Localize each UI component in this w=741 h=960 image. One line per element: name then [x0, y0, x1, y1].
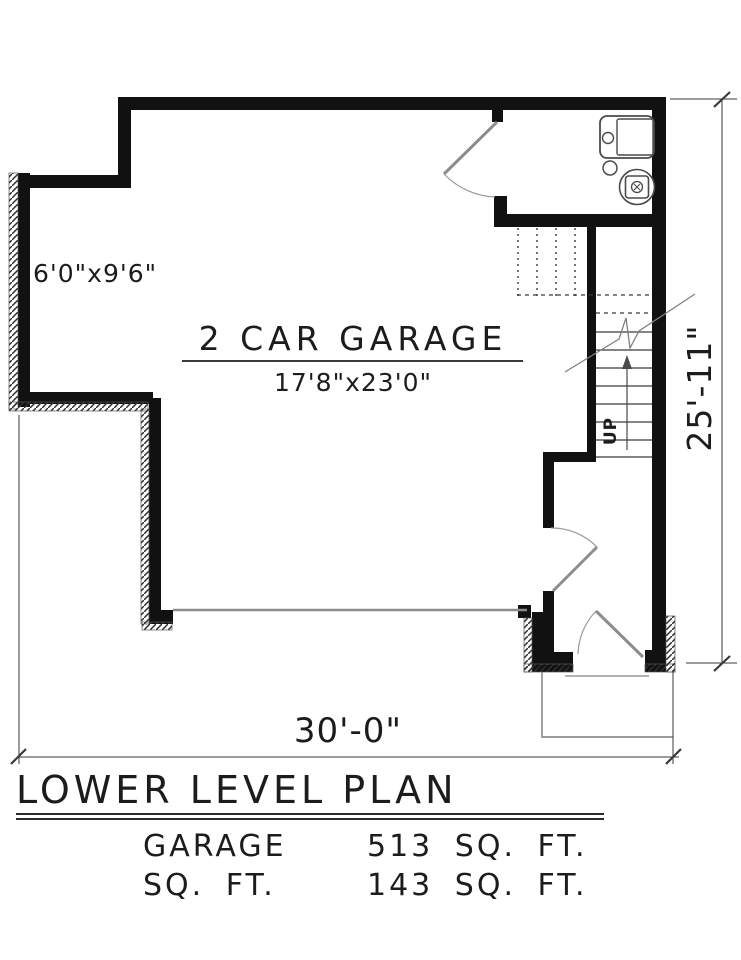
entry-interior-door — [551, 528, 597, 591]
area-table-row2-value: 143 SQ. FT. — [367, 868, 588, 903]
width-dimension-text: 30'-0" — [248, 711, 448, 751]
stair-up-label: UP — [601, 406, 631, 456]
stoop-outline — [542, 672, 673, 737]
bathroom-door — [444, 122, 497, 197]
stair-break-line — [565, 294, 695, 372]
water-heater-icon — [620, 170, 655, 205]
area-table-row1-value: 513 SQ. FT. — [367, 829, 588, 864]
floor-plan: 6'0"x9'6" 2 CAR GARAGE 17'8"x23'0" 30'-0… — [0, 0, 741, 960]
height-dimension-text: 25'-11" — [680, 303, 720, 473]
area-table-row1-label: GARAGE — [143, 829, 287, 864]
room-dimension-label: 17'8"x23'0" — [163, 368, 543, 397]
floor-drain-icon — [603, 161, 617, 175]
page-title: LOWER LEVEL PLAN — [16, 768, 458, 812]
exterior-entry-door — [565, 611, 649, 676]
room-title-underline — [182, 360, 523, 362]
laundry-sink-icon — [600, 116, 654, 158]
area-table-row2-label: SQ. FT. — [143, 868, 276, 903]
room-title: 2 CAR GARAGE — [163, 319, 543, 358]
alcove-dimension-label: 6'0"x9'6" — [33, 259, 157, 288]
page-title-underline — [16, 813, 604, 820]
